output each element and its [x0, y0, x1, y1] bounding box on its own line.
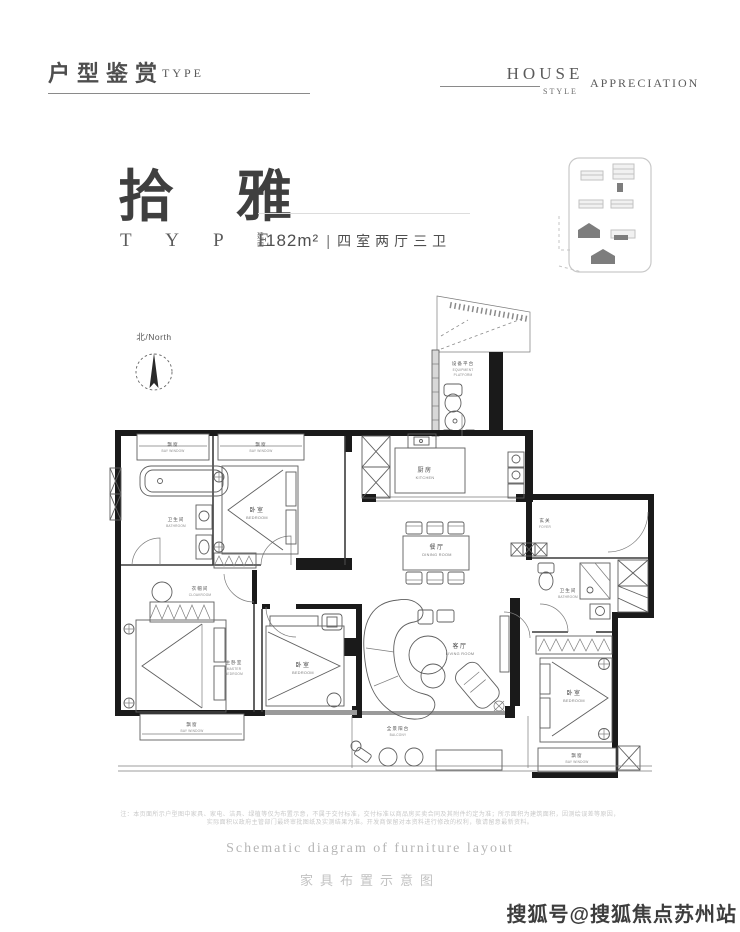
room-label-en2: BEDROOM [225, 672, 243, 676]
bedroom2-furniture [266, 614, 344, 707]
room-label-en: BEDROOM [563, 699, 585, 703]
room-label-en: KITCHEN [416, 476, 435, 480]
header-house: HOUSE [505, 64, 585, 84]
header-style: STYLE [543, 87, 578, 96]
master-suite-furniture [124, 582, 226, 712]
disclaimer: 注：本页面所示户型图中家具、家电、洁具、绿植等仅为布置示意，不属于交付标准，交付… [120, 811, 620, 827]
disclaimer-line2: 实际面积以政府主管部门最终审批图纸及实测结果为准。开发商保留对本资料进行修改的权… [120, 819, 620, 827]
room-label-en: BATHROOM [166, 524, 186, 528]
room-label-en: BEDROOM [246, 516, 268, 520]
floor-plan: 飘窗 BAY WINDOW 飘窗 BAY WINDOW 卫生间 BATHROOM… [105, 282, 670, 800]
room-label: 飘窗 [186, 721, 197, 728]
room-label: 卫生间 [168, 516, 185, 523]
room-label-en: BAY WINDOW [566, 760, 589, 764]
room-label: 玄关 [539, 517, 550, 524]
keyplan-buildings-dark [578, 183, 628, 264]
room-label: 主卧室 [226, 659, 243, 666]
room-label: 全景阳台 [387, 725, 409, 732]
hero-rule [258, 213, 470, 214]
watermark: 搜狐号@搜狐焦点苏州站 [506, 898, 737, 927]
room-label-en2: PLATFORM [454, 373, 473, 377]
keyplan-boundary-dashed [559, 216, 582, 272]
unit-name: 拾 雅 [118, 152, 316, 233]
bay-windows [137, 434, 616, 772]
spec-separator: | [326, 233, 330, 250]
room-label: 客厅 [452, 642, 467, 650]
room-label-en: MASTER [227, 667, 242, 671]
room-label-en: BAY WINDOW [181, 729, 204, 733]
bedroom3-furniture [536, 636, 612, 742]
page: 户型鉴赏 TYPE HOUSE STYLE APPRECIATION 拾 雅 T… [0, 0, 740, 932]
room-label-en: BATHROOM [558, 595, 578, 599]
room-label-en: CLOAKROOM [189, 593, 212, 597]
disclaimer-line1: 注：本页面所示户型图中家具、家电、洁具、绿植等仅为布置示意，不属于交付标准，交付… [120, 811, 620, 819]
caption-cn: 家具布置示意图 [0, 870, 740, 889]
header-rule-left [48, 93, 310, 94]
equipment-platform [437, 296, 530, 352]
header-rule-right [440, 86, 540, 87]
room-label: 飘窗 [571, 752, 582, 759]
room-label: 卧室 [295, 661, 310, 669]
unit-spec: 建面 182m² | 四室两厅三卫 [257, 228, 451, 254]
room-label-en: LIVING ROOM [446, 652, 475, 656]
site-keyplan [554, 148, 664, 290]
room-label-en: BAY WINDOW [250, 449, 273, 453]
kitchen-furniture [395, 434, 465, 493]
area-value: 182m² [266, 231, 319, 251]
room-label-en: BALCONY [390, 733, 407, 737]
page-title-cn: 户型鉴赏 [48, 56, 164, 88]
room-label-en: BAY WINDOW [162, 449, 185, 453]
area-prefix: 建面 [257, 233, 264, 249]
living-furniture [364, 599, 509, 719]
room-label: 飘窗 [255, 441, 266, 448]
rooms-spec: 四室两厅三卫 [337, 231, 451, 251]
header-appreciation: APPRECIATION [590, 76, 699, 91]
room-label-en: BEDROOM [292, 671, 314, 675]
room-label: 厨房 [417, 466, 432, 474]
caption-en: Schematic diagram of furniture layout [0, 841, 740, 857]
room-label-en: FOYER [539, 525, 551, 529]
room-label-en: DINING ROOM [422, 553, 451, 557]
page-title-en: TYPE [162, 66, 204, 81]
room-label-en: EQUIPMENT [453, 368, 474, 372]
room-label: 卫生间 [560, 587, 577, 594]
room-label: 飘窗 [167, 441, 178, 448]
room-label: 餐厅 [429, 543, 444, 551]
room-label: 卧室 [566, 689, 581, 697]
room-label: 卧室 [249, 506, 264, 514]
room-label: 设备平台 [452, 360, 474, 367]
room-label: 衣帽间 [192, 585, 209, 592]
